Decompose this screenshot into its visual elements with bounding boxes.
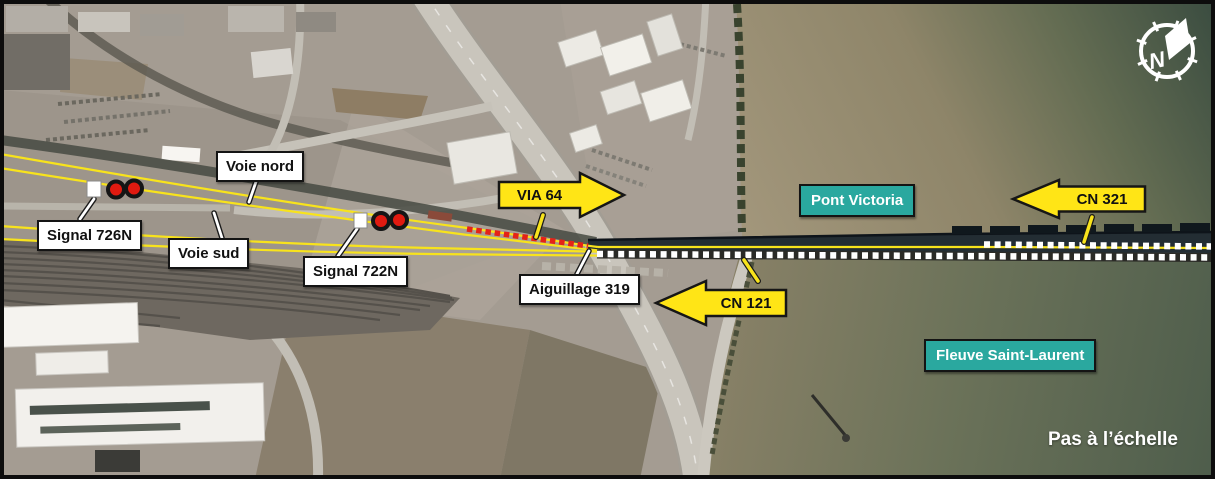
signal-726n-text: Signal 726N [47,227,132,244]
fleuve-saint-laurent-text: Fleuve Saint-Laurent [936,347,1084,364]
label-aiguillage-319: Aiguillage 319 [519,274,640,305]
label-voie-sud: Voie sud [168,238,249,269]
scale-note: Pas à l’échelle [1048,429,1178,451]
compass-icon: N [1132,13,1202,85]
signal-722n-text: Signal 722N [313,263,398,280]
cn-121-arrow-label: CN 121 [706,290,786,316]
label-signal-726n: Signal 726N [37,220,142,251]
pont-victoria-text: Pont Victoria [811,192,903,209]
voie-sud-text: Voie sud [178,245,239,262]
signal-726n-icon [87,181,142,198]
aiguillage-319-text: Aiguillage 319 [529,281,630,298]
aerial-map-figure: N Voie nord Voie sud Signal 726N Signal … [0,0,1215,479]
voie-nord-text: Voie nord [226,158,294,175]
cn-321-arrow-label: CN 321 [1059,186,1145,212]
signal-722n-icon [354,212,407,229]
cn-121-arrow: CN 121 [656,281,786,325]
label-pont-victoria: Pont Victoria [799,184,915,217]
label-voie-nord: Voie nord [216,151,304,182]
label-fleuve-saint-laurent: Fleuve Saint-Laurent [924,339,1096,372]
cn-321-arrow: CN 321 [1013,180,1145,218]
via-64-arrow: VIA 64 [499,173,624,217]
via-64-arrow-label: VIA 64 [499,182,580,208]
label-signal-722n: Signal 722N [303,256,408,287]
